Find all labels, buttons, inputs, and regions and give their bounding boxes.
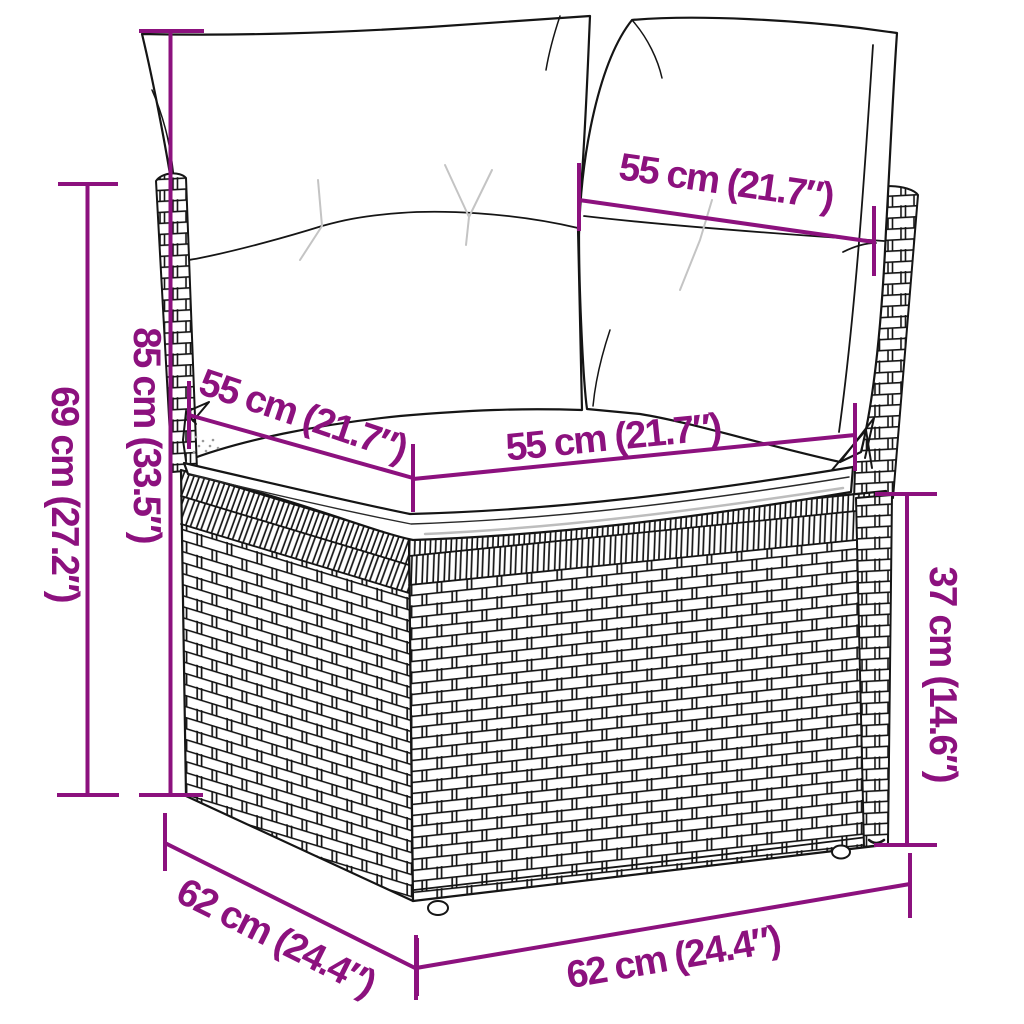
svg-text:69 cm (27.2″): 69 cm (27.2″) <box>43 386 86 601</box>
svg-text:85 cm (33.5″): 85 cm (33.5″) <box>125 327 168 542</box>
svg-text:62 cm (24.4″): 62 cm (24.4″) <box>563 918 783 997</box>
svg-text:37 cm (14.6″): 37 cm (14.6″) <box>921 566 964 781</box>
